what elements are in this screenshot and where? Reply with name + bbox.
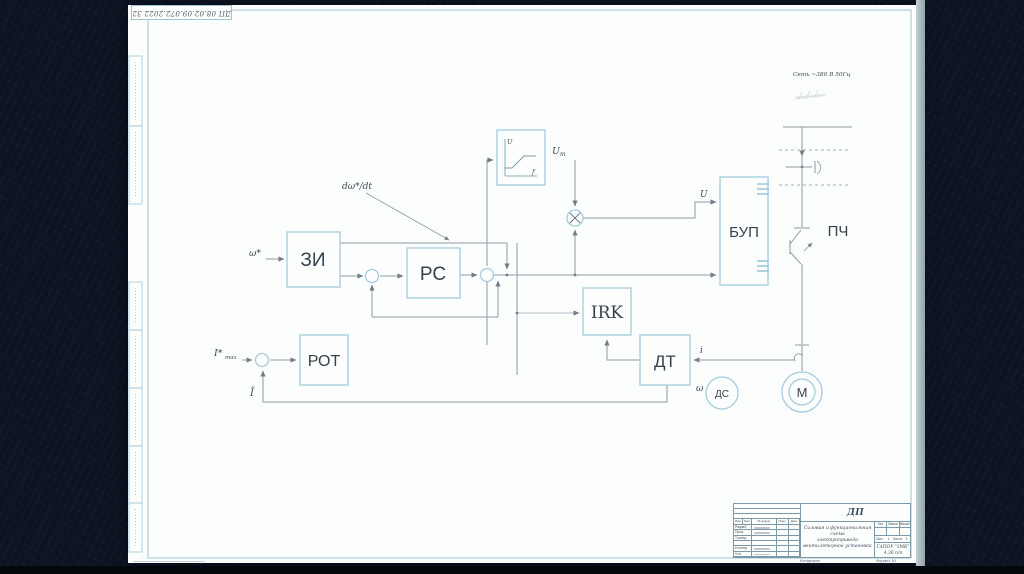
listov-value: 1 xyxy=(902,536,910,542)
masshtab-label: Масштаб xyxy=(900,522,910,527)
drawing-frame xyxy=(129,10,911,558)
net-label: Сеть ~380 В 50Гц xyxy=(793,72,851,78)
col-izm: Изм. xyxy=(734,519,743,524)
i-hat-label: Î xyxy=(249,387,255,399)
uf-axis-u-label: U xyxy=(507,138,513,146)
col-data: Дата xyxy=(789,519,800,524)
junction-dot xyxy=(516,312,519,315)
pch-label: ПЧ xyxy=(828,223,849,240)
illegible-label-smudge xyxy=(795,90,825,100)
col-dokum: № докум. xyxy=(752,519,777,524)
domega-leader xyxy=(366,193,449,240)
omega-signal-label: ω xyxy=(696,384,704,394)
row-utv: Утв. xyxy=(734,552,752,557)
corner-stamp: ДП 08.02.09.072.2022 32 xyxy=(131,5,232,20)
junction-dot xyxy=(574,274,577,277)
title-line-1: Силовая и функциональная схема xyxy=(801,526,874,538)
organization-cell: ГАПОУ "ЗМК" 4.36 п/п xyxy=(875,543,910,557)
rs-label: РС xyxy=(420,264,446,285)
org-name: ГАПОУ "ЗМК" xyxy=(875,545,910,551)
um-sub-label: m xyxy=(560,151,566,158)
transistor-arrow xyxy=(804,243,812,251)
uf-block xyxy=(497,130,545,185)
irk-label: IRK xyxy=(591,303,624,323)
title-line-3: вентиляторной установки xyxy=(801,544,874,550)
ds-label: ДС xyxy=(715,389,729,400)
title-block-left-table: Изм. Лист № докум. Подп. Дата Разраб. Пр… xyxy=(734,504,800,557)
title-block-right-section: Лит. Масса Масштаб Лист 1 Листов 1 ГАПОУ… xyxy=(874,522,910,557)
dt-to-irk xyxy=(607,340,640,360)
rot-label: РОТ xyxy=(308,353,341,370)
screenshot-stage: ЗИ РС РОТ IRK ДТ БУП ПЧ ДС М ω* dω*/dt U… xyxy=(0,0,1024,574)
signature-rows: Разраб. Пров. Т.контр. Н.контр. Утв. xyxy=(734,525,800,557)
col-list: Лист xyxy=(743,519,752,524)
col-podp: Подп. xyxy=(777,519,789,524)
junction-dot xyxy=(506,274,509,277)
omega-ref-label: ω* xyxy=(249,249,261,259)
format-label: Формат А1 xyxy=(876,559,916,563)
title-block: Изм. Лист № докум. Подп. Дата Разраб. Пр… xyxy=(733,503,911,558)
sum1-junction xyxy=(366,270,379,283)
junction-dot xyxy=(801,166,804,169)
uf-block-feed xyxy=(487,160,493,266)
kopiroval-label: Копировал xyxy=(800,559,840,563)
list-value: 1 xyxy=(884,536,893,542)
transistor-diag-lower xyxy=(790,252,801,264)
function-blocks xyxy=(256,130,823,412)
motor-label: М xyxy=(797,385,808,400)
mult-out-to-bup xyxy=(583,202,716,218)
domega-label: dω*/dt xyxy=(342,182,372,192)
corner-stamp-text: ДП 08.02.09.072.2022 32 xyxy=(132,9,231,17)
listov-label: Листов xyxy=(893,536,902,542)
breaker-arc xyxy=(817,161,821,174)
illegible-handwriting xyxy=(752,530,777,535)
sheet-count-row: Лист 1 Листов 1 xyxy=(875,536,910,543)
lit-value-row xyxy=(875,528,910,536)
list-label: Лист xyxy=(875,536,884,542)
illegible-handwriting xyxy=(752,552,777,557)
schematic-drawing: ЗИ РС РОТ IRK ДТ БУП ПЧ ДС М ω* dω*/dt U… xyxy=(0,0,1024,574)
zi-label: ЗИ xyxy=(300,250,325,271)
bup-label: БУП xyxy=(729,224,759,241)
rot-sum-junction xyxy=(256,354,269,367)
sum2-junction xyxy=(481,269,494,282)
lit-label: Лит. xyxy=(875,522,887,527)
dt-label: ДТ xyxy=(654,352,676,371)
document-number: ДП 08.02.09.072.2022 32 xyxy=(800,504,910,522)
transistor-diag-upper xyxy=(790,230,801,244)
i-signal-label: i xyxy=(700,346,703,356)
imax-label: I* xyxy=(213,348,223,359)
massa-label: Масса xyxy=(887,522,899,527)
drawing-title: Силовая и функциональная схема электропр… xyxy=(800,522,874,557)
illegible-footer-smudge xyxy=(133,561,205,563)
u-input-label: U xyxy=(700,190,708,200)
org-group: 4.36 п/п xyxy=(875,551,910,557)
imax-sub-label: max xyxy=(225,355,237,361)
